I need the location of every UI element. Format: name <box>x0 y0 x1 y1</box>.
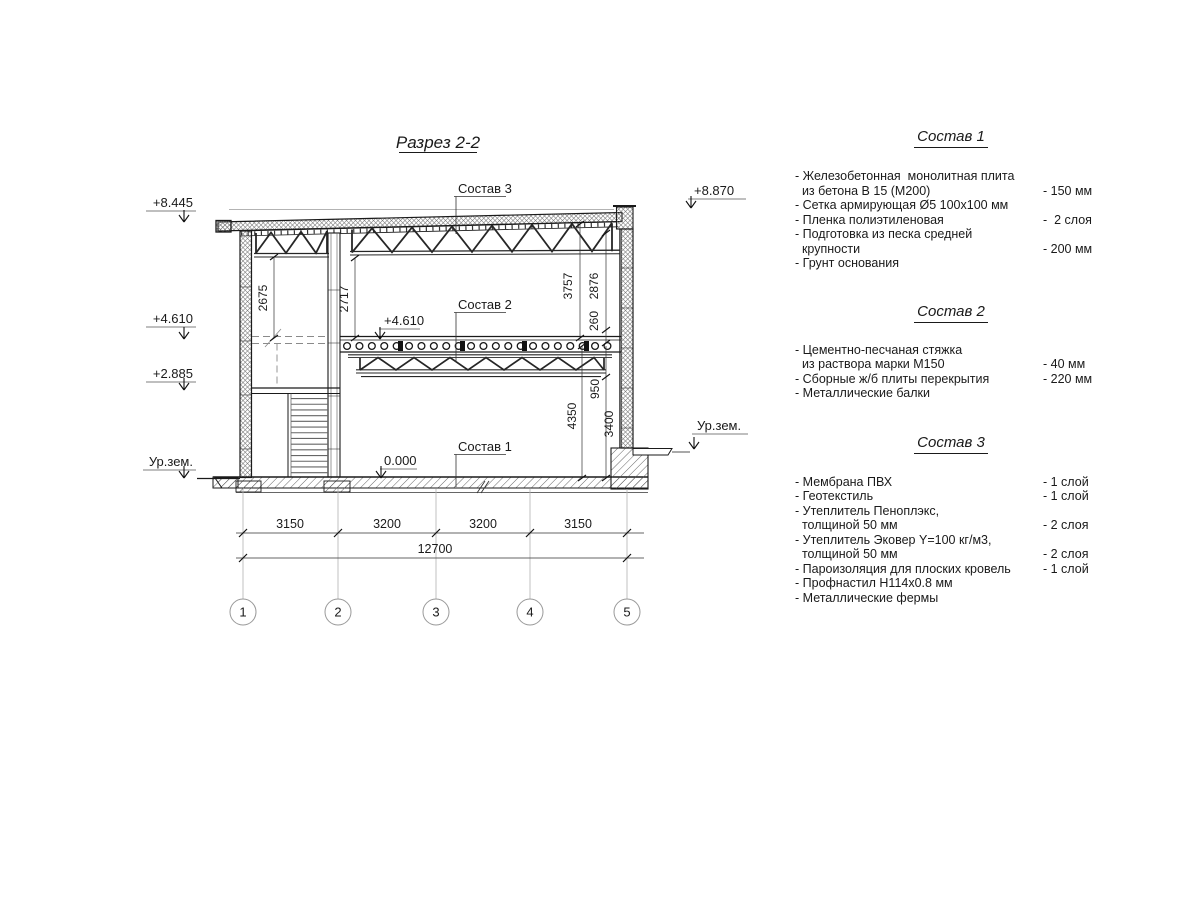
spec-item-value: - 1 слой <box>1043 489 1107 504</box>
spec-item-value: - 1 слой <box>1043 475 1107 490</box>
spec-item-text: - Утеплитель Пеноплэкс, <box>795 504 939 519</box>
dim-bay-1: 3150 <box>276 517 304 531</box>
spec-line: - Геотекстиль- 1 слой <box>795 489 1107 504</box>
drawing-sheet: Разрез 2-2 <box>0 0 1200 900</box>
spec-item-value: - 2 слоя <box>1043 213 1107 228</box>
spec-item-text: - Утеплитель Эковер Y=100 кг/м3, <box>795 533 991 548</box>
vertical-dimensions <box>270 221 610 481</box>
elevation-interior: +4.610 <box>384 313 424 328</box>
spec-item-text: толщиной 50 мм <box>795 518 898 533</box>
elevation-zero: 0.000 <box>384 453 417 468</box>
spec-line: толщиной 50 мм- 2 слоя <box>795 518 1107 533</box>
dim-3400: 3400 <box>602 410 616 437</box>
spec-item-value: - 40 мм <box>1043 357 1107 372</box>
spec-item-value: - 150 мм <box>1043 184 1107 199</box>
right-apron <box>633 449 672 456</box>
axis-label: 3 <box>432 605 439 620</box>
page-title: Разрез 2-2 <box>396 133 481 152</box>
spec-item-value <box>1043 227 1107 242</box>
parapet <box>613 206 636 229</box>
grid-axes: 1 2 3 4 5 <box>230 489 640 625</box>
dim-260: 260 <box>587 311 601 331</box>
dim-2675: 2675 <box>256 284 270 311</box>
spec-line: - Утеплитель Эковер Y=100 кг/м3, <box>795 533 1107 548</box>
spec-line: - Подготовка из песка средней <box>795 227 1107 242</box>
specifications-panel: Состав 1 - Железобетонная монолитная пли… <box>795 128 1107 605</box>
left-wall <box>240 231 252 478</box>
spec-list-2: - Цементно-песчаная стяжка из раствора м… <box>795 343 1107 401</box>
spec-title-3: Состав 3 <box>795 434 1107 451</box>
spec-line: - Грунт основания <box>795 256 1107 271</box>
axis-label: 2 <box>334 605 341 620</box>
spec-item-value <box>1043 169 1107 184</box>
spec-title-text: Состав 3 <box>914 434 988 454</box>
spec-title-1: Состав 1 <box>795 128 1107 145</box>
spec-line: - Сетка армирующая Ø5 100х100 мм <box>795 198 1107 213</box>
spec-line: - Металлические фермы <box>795 591 1107 606</box>
spec-item-text: - Сетка армирующая Ø5 100х100 мм <box>795 198 1008 213</box>
spec-item-value <box>1043 256 1107 271</box>
spec-line: крупности- 200 мм <box>795 242 1107 257</box>
spec-line: из бетона В 15 (М200)- 150 мм <box>795 184 1107 199</box>
elevation-left-mid: +4.610 <box>153 311 193 326</box>
elevation-right-top: +8.870 <box>694 183 734 198</box>
spec-line: - Пароизоляция для плоских кровель- 1 сл… <box>795 562 1107 577</box>
spec-title-text: Состав 2 <box>914 303 988 323</box>
hidden-slab-lines <box>252 329 329 388</box>
spec-item-text: - Профнастил Н114х0.8 мм <box>795 576 953 591</box>
spec-item-value <box>1043 576 1107 591</box>
spec-item-text: - Цементно-песчаная стяжка <box>795 343 962 358</box>
spec-item-text: - Грунт основания <box>795 256 899 271</box>
spec-block-1: Состав 1 - Железобетонная монолитная пли… <box>795 128 1107 271</box>
dim-2876: 2876 <box>587 272 601 299</box>
dim-bay-4: 3150 <box>564 517 592 531</box>
spec-line: - Утеплитель Пеноплэкс, <box>795 504 1107 519</box>
ground-level-left: Ур.зем. <box>149 454 193 469</box>
spec-line: - Цементно-песчаная стяжка <box>795 343 1107 358</box>
label-sostav-2: Состав 2 <box>458 297 512 312</box>
axis-label: 5 <box>623 605 630 620</box>
spec-item-text: - Сборные ж/б плиты перекрытия <box>795 372 989 387</box>
spec-item-text: - Геотекстиль <box>795 489 873 504</box>
spec-item-text: толщиной 50 мм <box>795 547 898 562</box>
spec-item-text: крупности <box>795 242 860 257</box>
roof <box>216 213 622 237</box>
roof-edge-cap <box>216 221 231 233</box>
stairs <box>288 394 310 478</box>
spec-line: - Пленка полиэтиленовая- 2 слоя <box>795 213 1107 228</box>
label-sostav-3: Состав 3 <box>458 181 512 196</box>
dim-950: 950 <box>588 379 602 399</box>
dim-bay-3: 3200 <box>469 517 497 531</box>
elevation-left-top: +8.445 <box>153 195 193 210</box>
dim-2717: 2717 <box>337 285 351 312</box>
spec-item-text: - Мембрана ПВХ <box>795 475 892 490</box>
mid-floor-truss <box>348 355 612 377</box>
dim-4350: 4350 <box>565 402 579 429</box>
spec-item-value: - 220 мм <box>1043 372 1107 387</box>
spec-item-text: - Подготовка из песка средней <box>795 227 972 242</box>
spec-block-2: Состав 2 - Цементно-песчаная стяжка из р… <box>795 303 1107 401</box>
axis-label: 1 <box>239 605 246 620</box>
dim-3757: 3757 <box>561 272 575 299</box>
spec-item-value <box>1043 343 1107 358</box>
label-sostav-1: Состав 1 <box>458 439 512 454</box>
dim-bay-2: 3200 <box>373 517 401 531</box>
spec-line: - Профнастил Н114х0.8 мм <box>795 576 1107 591</box>
dimension-texts: 3150 3200 3200 3150 12700 <box>276 517 592 556</box>
spec-item-value: - 1 слой <box>1043 562 1107 577</box>
composition-labels: Состав 3 Состав 2 Состав 1 <box>454 181 512 487</box>
elevation-left-low: +2.885 <box>153 366 193 381</box>
drawing-title-group: Разрез 2-2 <box>396 133 481 153</box>
spec-item-text: - Пленка полиэтиленовая <box>795 213 944 228</box>
spec-item-text: - Металлические балки <box>795 386 930 401</box>
middle-wall <box>328 233 340 477</box>
spec-list-3: - Мембрана ПВХ- 1 слой - Геотекстиль- 1 … <box>795 475 1107 606</box>
spec-item-text: из раствора марки М150 <box>795 357 945 372</box>
spec-item-value <box>1043 198 1107 213</box>
stair-landing <box>252 388 341 394</box>
dim-total: 12700 <box>418 542 453 556</box>
spec-title-text: Состав 1 <box>914 128 988 148</box>
right-wall <box>620 229 634 448</box>
spec-title-2: Состав 2 <box>795 303 1107 320</box>
spec-item-text: - Металлические фермы <box>795 591 938 606</box>
spec-item-value <box>1043 591 1107 606</box>
spec-item-value <box>1043 386 1107 401</box>
footing-axis2 <box>324 481 350 492</box>
spec-item-text: - Железобетонная монолитная плита <box>795 169 1014 184</box>
axis-label: 4 <box>526 605 533 620</box>
ground-floor <box>197 448 690 493</box>
footing-axis1 <box>236 481 261 492</box>
spec-line: - Железобетонная монолитная плита <box>795 169 1107 184</box>
spec-line: - Сборные ж/б плиты перекрытия- 220 мм <box>795 372 1107 387</box>
spec-block-3: Состав 3 - Мембрана ПВХ- 1 слой - Геотек… <box>795 434 1107 606</box>
section-drawing: Разрез 2-2 <box>0 0 780 660</box>
spec-item-value: - 2 слоя <box>1043 547 1107 562</box>
spec-list-1: - Железобетонная монолитная плита из бет… <box>795 169 1107 271</box>
spec-item-value <box>1043 504 1107 519</box>
spec-item-text: из бетона В 15 (М200) <box>795 184 930 199</box>
ground-level-right: Ур.зем. <box>697 418 741 433</box>
spec-item-value: - 200 мм <box>1043 242 1107 257</box>
spec-line: из раствора марки М150- 40 мм <box>795 357 1107 372</box>
spec-item-value: - 2 слоя <box>1043 518 1107 533</box>
spec-line: - Мембрана ПВХ- 1 слой <box>795 475 1107 490</box>
spec-line: толщиной 50 мм- 2 слоя <box>795 547 1107 562</box>
spec-item-value <box>1043 533 1107 548</box>
spec-item-text: - Пароизоляция для плоских кровель <box>795 562 1011 577</box>
spec-line: - Металлические балки <box>795 386 1107 401</box>
